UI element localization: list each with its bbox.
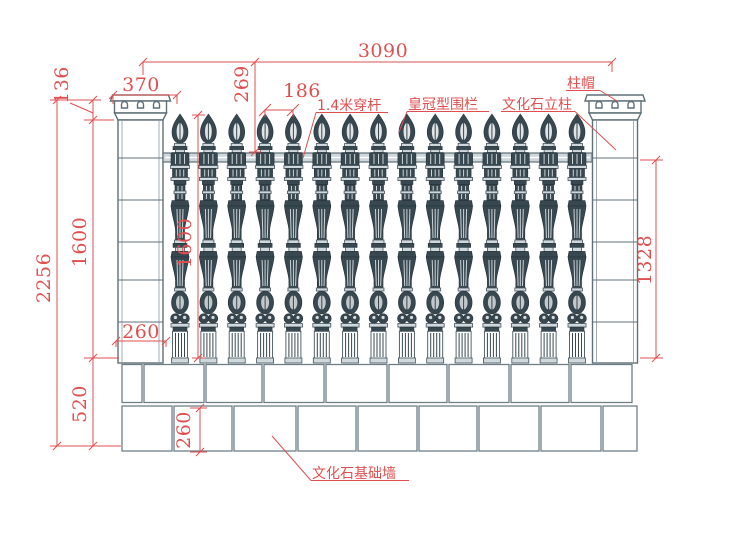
dim-total-height: 2256 <box>33 253 55 303</box>
dim-foundation-height: 520 <box>69 385 91 423</box>
dim-baluster-spacing: 186 <box>283 80 321 102</box>
dim-baluster-height: 1600 <box>174 218 196 268</box>
label-foundation-wall: 文化石基础墙 <box>312 465 396 482</box>
dim-column-block-width: 260 <box>122 321 160 343</box>
dim-overall-width: 3090 <box>358 40 408 62</box>
label-fence-type: 皇冠型围栏 <box>408 97 478 113</box>
right-column <box>585 95 645 363</box>
drawing-canvas: 3090 370 136 2256 1600 520 269 186 1600 … <box>0 0 739 539</box>
dim-cap-width: 370 <box>122 74 160 96</box>
fence-elevation-drawing: 3090 370 136 2256 1600 520 269 186 1600 … <box>0 0 739 539</box>
dim-foundation-block-height: 260 <box>173 411 195 449</box>
dim-panel-height: 1328 <box>634 235 656 285</box>
label-through-rod: 1.4米穿杆 <box>317 98 381 114</box>
label-column-cap: 柱帽 <box>567 76 595 92</box>
label-stone-column: 文化石立柱 <box>502 97 572 113</box>
baluster-row <box>171 114 587 363</box>
dim-column-height: 1600 <box>69 217 91 267</box>
dim-cap-height: 136 <box>51 66 73 104</box>
dim-rail-offset: 269 <box>231 65 253 103</box>
